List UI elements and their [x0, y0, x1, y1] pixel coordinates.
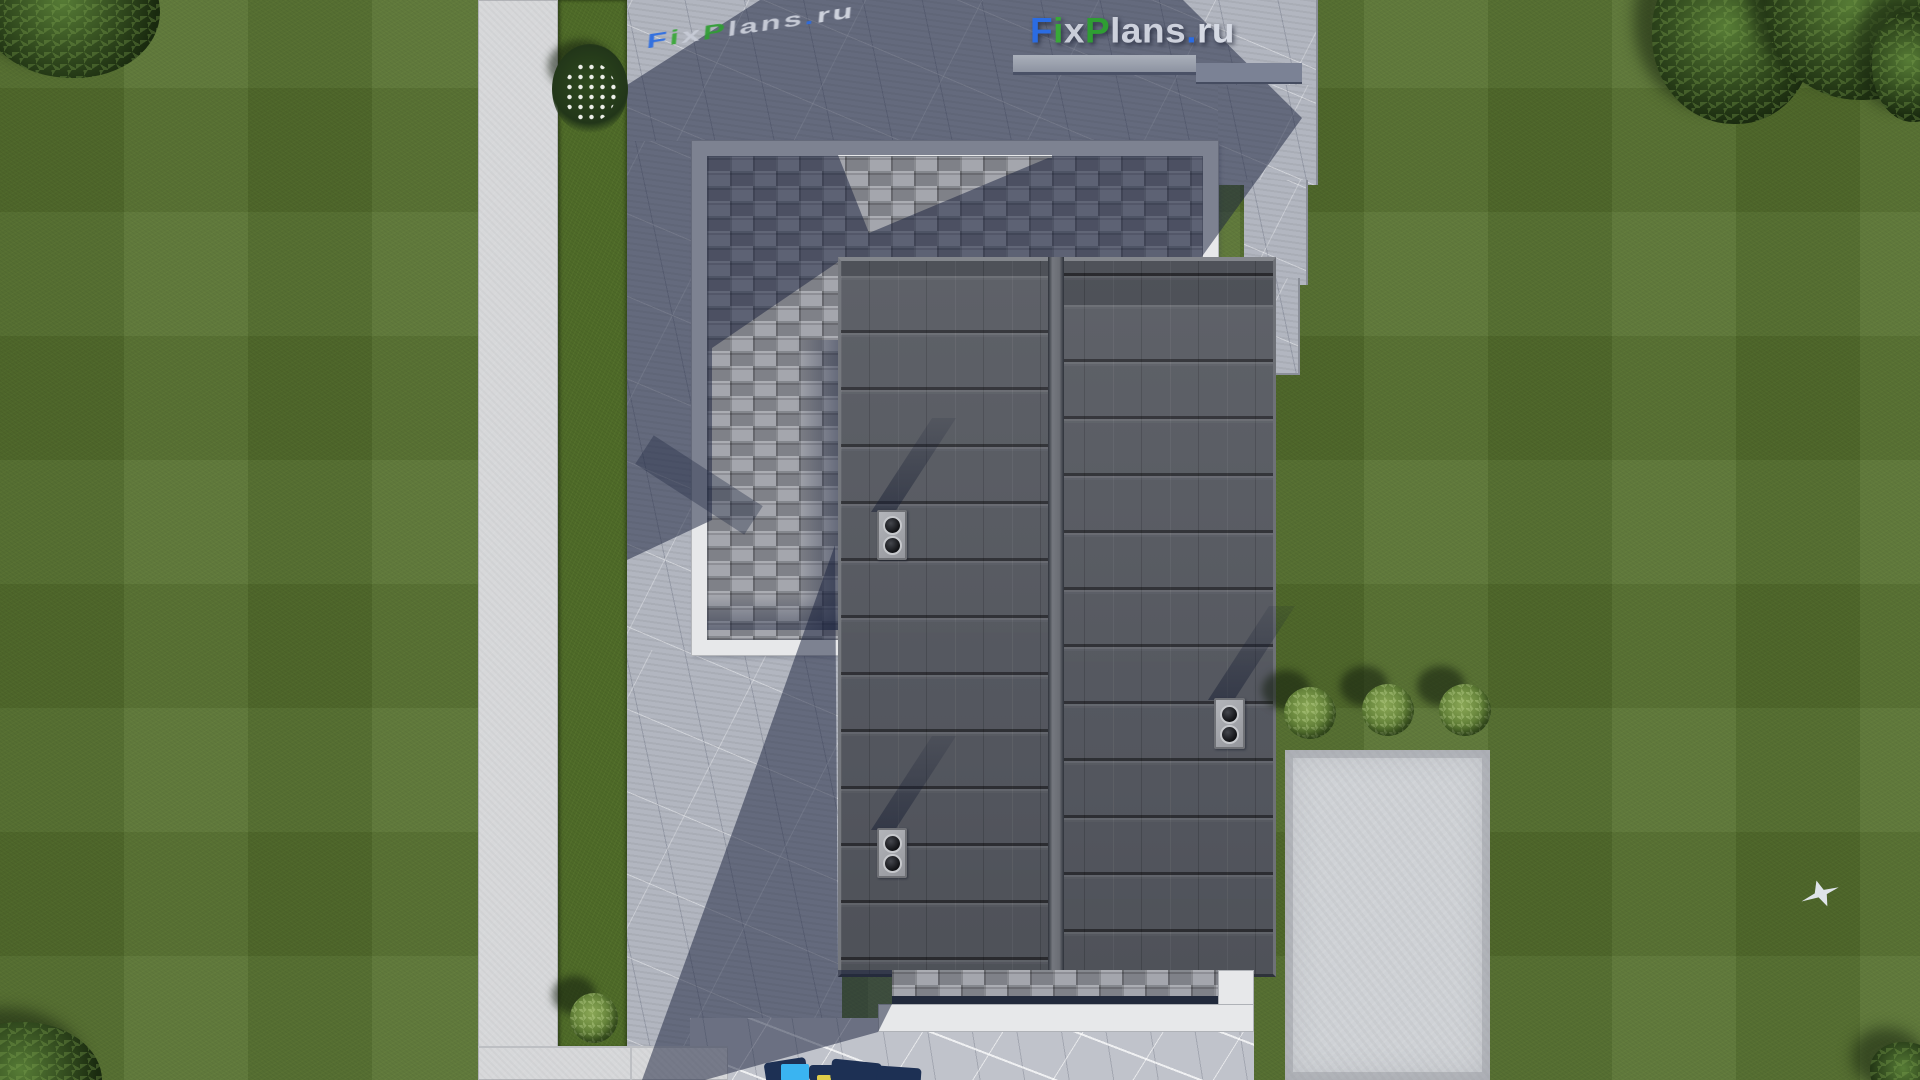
fixplans-logo: FixPlans.ru	[1030, 11, 1235, 50]
pavement-seam-horizontal	[478, 1046, 728, 1048]
fixplans-logo-part: x	[1064, 11, 1085, 50]
bottom-watermark-shape	[830, 1058, 882, 1080]
left-walkway	[478, 0, 558, 1080]
chimney-3-vent-top	[1220, 705, 1239, 724]
fixplans-logo-part: lans	[1110, 11, 1186, 50]
chimney-1-vent-bottom	[883, 536, 902, 555]
chimney-3-vent-bottom	[1220, 725, 1239, 744]
bush-1	[1284, 687, 1336, 739]
ground-watermark-part: F	[646, 27, 671, 53]
chimney-2	[877, 828, 907, 878]
pavement-right-step-1	[1218, 85, 1318, 185]
ground-watermark-part: x	[681, 22, 704, 48]
bush-2	[1362, 684, 1414, 736]
chimney-3	[1214, 698, 1245, 749]
pavement-seam-vertical	[630, 1048, 632, 1080]
fixplans-logo-part: F	[1030, 11, 1053, 50]
chimney-2-vent-top	[883, 834, 902, 853]
chimney-1-vent-top	[883, 516, 902, 535]
chimney-2-vent-bottom	[883, 854, 902, 873]
flower-bush-blossoms	[564, 62, 616, 122]
concrete-bottom-left	[478, 1046, 728, 1080]
flower-bush	[552, 44, 628, 134]
pavement-lower-left	[627, 650, 842, 1080]
parapet-white-horizontal	[878, 1004, 1254, 1032]
fixplans-logo-part: i	[1053, 11, 1064, 50]
bottom-watermark-partial	[765, 1052, 935, 1080]
chimney-1	[877, 510, 907, 560]
driveway	[1285, 750, 1490, 1080]
strip-bush	[570, 993, 618, 1043]
main-roof-right-panel	[1056, 257, 1276, 977]
entrance-step-ledge	[1013, 55, 1196, 75]
bottom-watermark-yellow-shape	[817, 1075, 831, 1080]
fixplans-logo-part: ru	[1197, 11, 1235, 50]
aerial-house-render: FixPlans.ru FixPlans.ru	[0, 0, 1920, 1080]
main-roof-left-panel	[838, 257, 1059, 977]
planting-strip	[558, 0, 627, 1048]
fixplans-logo-part: P	[1085, 11, 1110, 50]
roof-ridge	[1048, 257, 1064, 970]
fixplans-logo-part: .	[1186, 11, 1197, 50]
entrance-step-ledge-right	[1196, 63, 1302, 84]
bottom-watermark-shape	[876, 1065, 921, 1080]
ground-watermark-part: P	[702, 18, 729, 44]
bottom-watermark-cyan-shape	[781, 1064, 809, 1080]
bush-3	[1439, 684, 1491, 736]
